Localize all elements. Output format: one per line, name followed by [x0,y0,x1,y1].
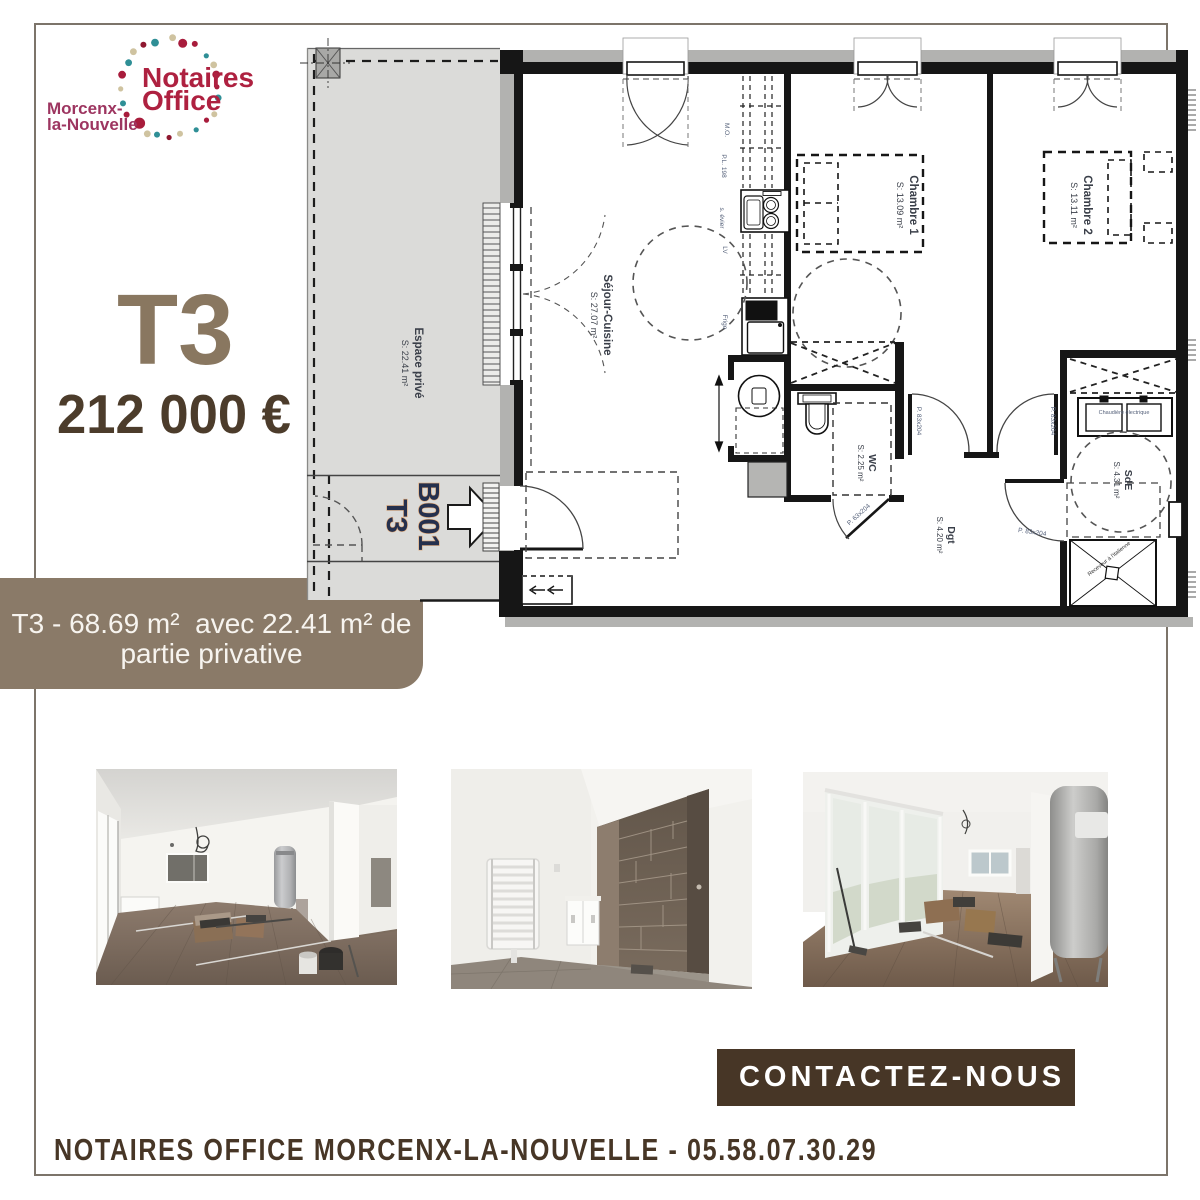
svg-text:S: 2.25 m²: S: 2.25 m² [856,445,865,482]
svg-text:Chambre 1: Chambre 1 [907,175,919,235]
svg-text:SdE: SdE [1122,470,1134,490]
svg-text:P. 83x204: P. 83x204 [915,407,922,436]
svg-text:P. 83x204: P. 83x204 [1049,407,1056,436]
svg-text:P.L. 198: P.L. 198 [720,154,727,178]
svg-text:S: 22.41 m²: S: 22.41 m² [400,340,410,387]
svg-text:S: 27.07 m²: S: 27.07 m² [589,292,599,339]
svg-text:S: 13.11 m²: S: 13.11 m² [1069,182,1079,228]
svg-text:Espace privé: Espace privé [412,328,424,399]
svg-text:WC: WC [866,454,878,472]
svg-text:la-Nouvelle: la-Nouvelle [47,115,138,134]
svg-text:Office: Office [142,85,221,116]
svg-text:Chambre 2: Chambre 2 [1081,175,1093,234]
svg-text:M.O.: M.O. [723,123,730,137]
svg-text:s. évier: s. évier [718,208,725,230]
svg-text:Séjour-Cuisine: Séjour-Cuisine [601,274,613,355]
svg-text:T3: T3 [380,499,412,533]
svg-text:Frigo: Frigo [721,315,728,330]
svg-text:Dgt: Dgt [945,526,957,544]
svg-text:S: 13.09 m²: S: 13.09 m² [895,182,905,229]
svg-text:Chaudière électrique: Chaudière électrique [1099,410,1150,416]
svg-text:S: 4.20 m²: S: 4.20 m² [935,517,944,554]
svg-text:LV: LV [721,246,728,254]
svg-text:B001: B001 [412,481,444,550]
svg-text:S: 4.31 m²: S: 4.31 m² [1112,462,1121,499]
